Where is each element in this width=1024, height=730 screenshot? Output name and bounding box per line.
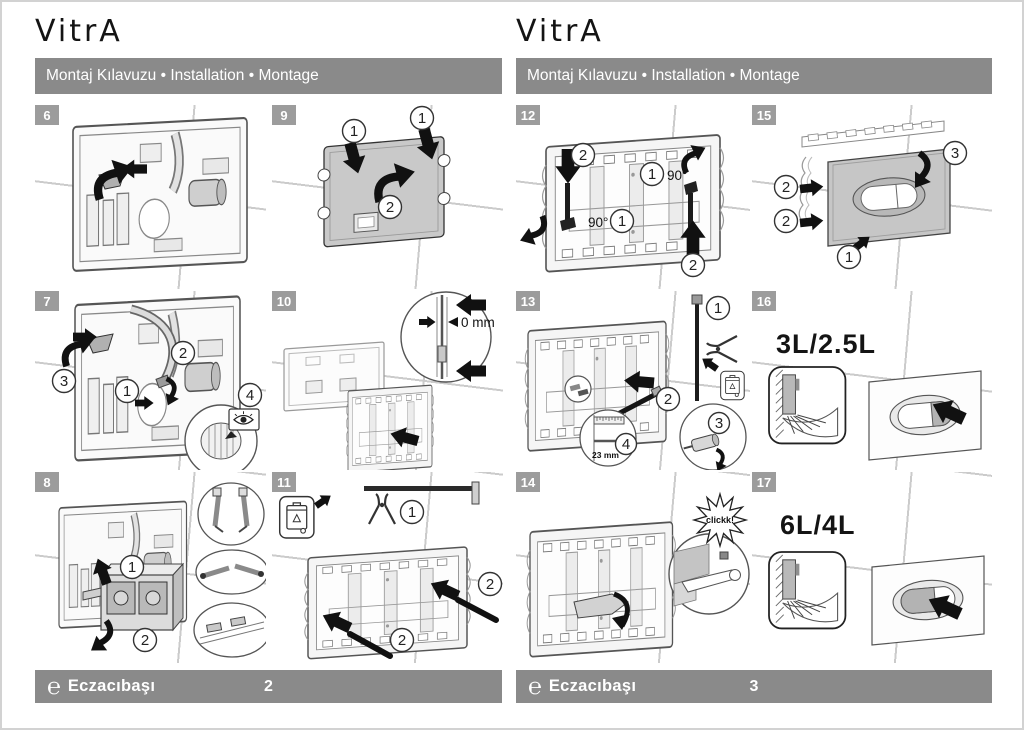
step-16-illustration: 3L/2.5L (752, 291, 992, 470)
footer-bar: ℮ Eczacıbaşı 2 (35, 670, 502, 703)
zero-mm-label: 0 mm (461, 315, 495, 330)
svg-text:2: 2 (141, 632, 149, 649)
flush-plate (828, 149, 950, 246)
svg-text:2: 2 (179, 345, 187, 362)
magnifier-circle (198, 483, 264, 545)
callout: 1 (641, 163, 664, 186)
step-10-illustration: 0 mm (272, 291, 503, 470)
callout: 1 (343, 120, 366, 143)
step-panel-13: 13 23 mm (516, 291, 750, 470)
svg-text:1: 1 (714, 300, 722, 317)
svg-text:1: 1 (618, 213, 626, 230)
click-label: clickk! (706, 515, 734, 525)
recycle-bin-icon (280, 497, 314, 538)
title-text: Montaj Kılavuzu • Installation • Montage (527, 67, 800, 85)
step-panel-7: 7 1 2 3 4 (35, 291, 266, 470)
step-13-illustration: 23 mm 1 2 3 4 (516, 291, 750, 470)
callout: 4 (239, 384, 262, 407)
svg-text:4: 4 (622, 436, 630, 453)
step-panel-9: 9 1 1 2 (272, 105, 503, 289)
step-number-badge: 17 (752, 472, 776, 492)
threaded-rod (695, 297, 699, 401)
manual-spread: VitrA Montaj Kılavuzu • Installation • M… (0, 0, 1024, 730)
step-number-badge: 11 (272, 472, 296, 492)
step-panel-10: 10 (272, 291, 503, 470)
svg-text:3: 3 (715, 415, 723, 432)
callout: 3 (53, 370, 76, 393)
svg-text:1: 1 (408, 504, 416, 521)
step-14-illustration: clickk! (516, 472, 750, 663)
small-flush-icon (769, 367, 845, 443)
angle-label: 90° (667, 168, 687, 183)
step-panel-11: 11 1 2 2 (272, 472, 503, 663)
svg-text:2: 2 (782, 179, 790, 196)
step-number-badge: 12 (516, 105, 540, 125)
page-number: 2 (35, 678, 502, 696)
rotation-arrow-icon (516, 216, 549, 248)
step-number-badge: 7 (35, 291, 59, 311)
step-panel-15: 15 2 2 1 3 (752, 105, 992, 289)
callout: 2 (134, 629, 157, 652)
callout: 2 (172, 342, 195, 365)
callout: 1 (411, 107, 434, 130)
footer-bar: ℮ Eczacıbaşı 3 (516, 670, 992, 703)
callout: 1 (707, 297, 730, 320)
callout: 3 (709, 413, 730, 434)
title-text: Montaj Kılavuzu • Installation • Montage (46, 67, 319, 85)
svg-text:2: 2 (398, 632, 406, 649)
title-bar: Montaj Kılavuzu • Installation • Montage (516, 58, 992, 94)
svg-text:3: 3 (60, 373, 68, 390)
frame-illustration (305, 547, 470, 659)
svg-text:1: 1 (123, 383, 131, 400)
page-number: 3 (516, 678, 992, 696)
step-7-illustration: 1 2 3 4 (35, 291, 266, 470)
callout: 4 (616, 434, 637, 455)
title-bar: Montaj Kılavuzu • Installation • Montage (35, 58, 502, 94)
full-flush-icon (769, 552, 845, 628)
svg-text:2: 2 (689, 257, 697, 274)
vitra-logo: VitrA (516, 14, 604, 49)
callout: 1 (611, 210, 634, 233)
step-panel-16: 16 3L/2.5L (752, 291, 992, 470)
vitra-logo: VitrA (35, 14, 123, 49)
arrow-icon (799, 178, 824, 198)
step-6-illustration (35, 105, 266, 289)
step-17-illustration: 6L/4L (752, 472, 992, 663)
callout: 1 (838, 246, 861, 269)
svg-text:2: 2 (486, 576, 494, 593)
step-panel-6: 6 (35, 105, 266, 289)
svg-text:2: 2 (386, 199, 394, 216)
pliers-icon (369, 494, 395, 524)
callout: 3 (944, 142, 967, 165)
angle-label: 90° (588, 215, 608, 230)
svg-text:1: 1 (418, 110, 426, 127)
step-panel-14: 14 clickk! (516, 472, 750, 663)
callout: 2 (379, 196, 402, 219)
callout: 2 (682, 254, 705, 277)
svg-text:1: 1 (128, 559, 136, 576)
recycle-bin-icon (721, 371, 745, 400)
page-3: VitrA Montaj Kılavuzu • Installation • M… (516, 2, 992, 730)
step-number-badge: 9 (272, 105, 296, 125)
svg-text:2: 2 (782, 213, 790, 230)
flush-volume-label: 6L/4L (780, 510, 856, 540)
svg-text:1: 1 (648, 166, 656, 183)
callout: 2 (657, 388, 680, 411)
step-11-illustration: 1 2 2 (272, 472, 503, 663)
svg-text:4: 4 (246, 387, 254, 404)
mm23-label: 23 mm (592, 450, 619, 460)
callout: 2 (479, 573, 502, 596)
arrow-icon (698, 353, 720, 374)
flush-volume-label: 3L/2.5L (776, 329, 876, 359)
pliers-icon (707, 336, 737, 362)
callout: 1 (116, 380, 139, 403)
page-2: VitrA Montaj Kılavuzu • Installation • M… (35, 2, 502, 730)
svg-text:1: 1 (845, 249, 853, 266)
arrow-icon (799, 212, 824, 232)
callout: 2 (391, 629, 414, 652)
step-number-badge: 8 (35, 472, 59, 492)
locking-pin (565, 183, 570, 221)
callout: 2 (775, 210, 798, 233)
step-number-badge: 14 (516, 472, 540, 492)
support-rod (364, 486, 476, 491)
svg-text:2: 2 (579, 147, 587, 164)
step-12-illustration: 90° 90° 2 1 1 2 (516, 105, 750, 289)
step-number-badge: 16 (752, 291, 776, 311)
step-number-badge: 10 (272, 291, 296, 311)
callout: 2 (775, 176, 798, 199)
step-panel-8: 8 (35, 472, 266, 663)
callout: 1 (401, 501, 424, 524)
step-9-illustration: 1 1 2 (272, 105, 503, 289)
callout: 2 (572, 144, 595, 167)
frame-illustration (346, 385, 433, 470)
step-8-illustration: 1 2 (35, 472, 266, 663)
step-number-badge: 15 (752, 105, 776, 125)
step-panel-12: 12 90° 90° 2 1 1 2 (516, 105, 750, 289)
step-number-badge: 13 (516, 291, 540, 311)
arrow-icon (312, 490, 334, 511)
svg-text:2: 2 (664, 391, 672, 408)
svg-text:1: 1 (350, 123, 358, 140)
step-number-badge: 6 (35, 105, 59, 125)
callout: 1 (121, 556, 144, 579)
step-panel-17: 17 6L/4L (752, 472, 992, 663)
svg-text:3: 3 (951, 145, 959, 162)
frame-illustration (527, 522, 675, 657)
step-15-illustration: 2 2 1 3 (752, 105, 992, 289)
